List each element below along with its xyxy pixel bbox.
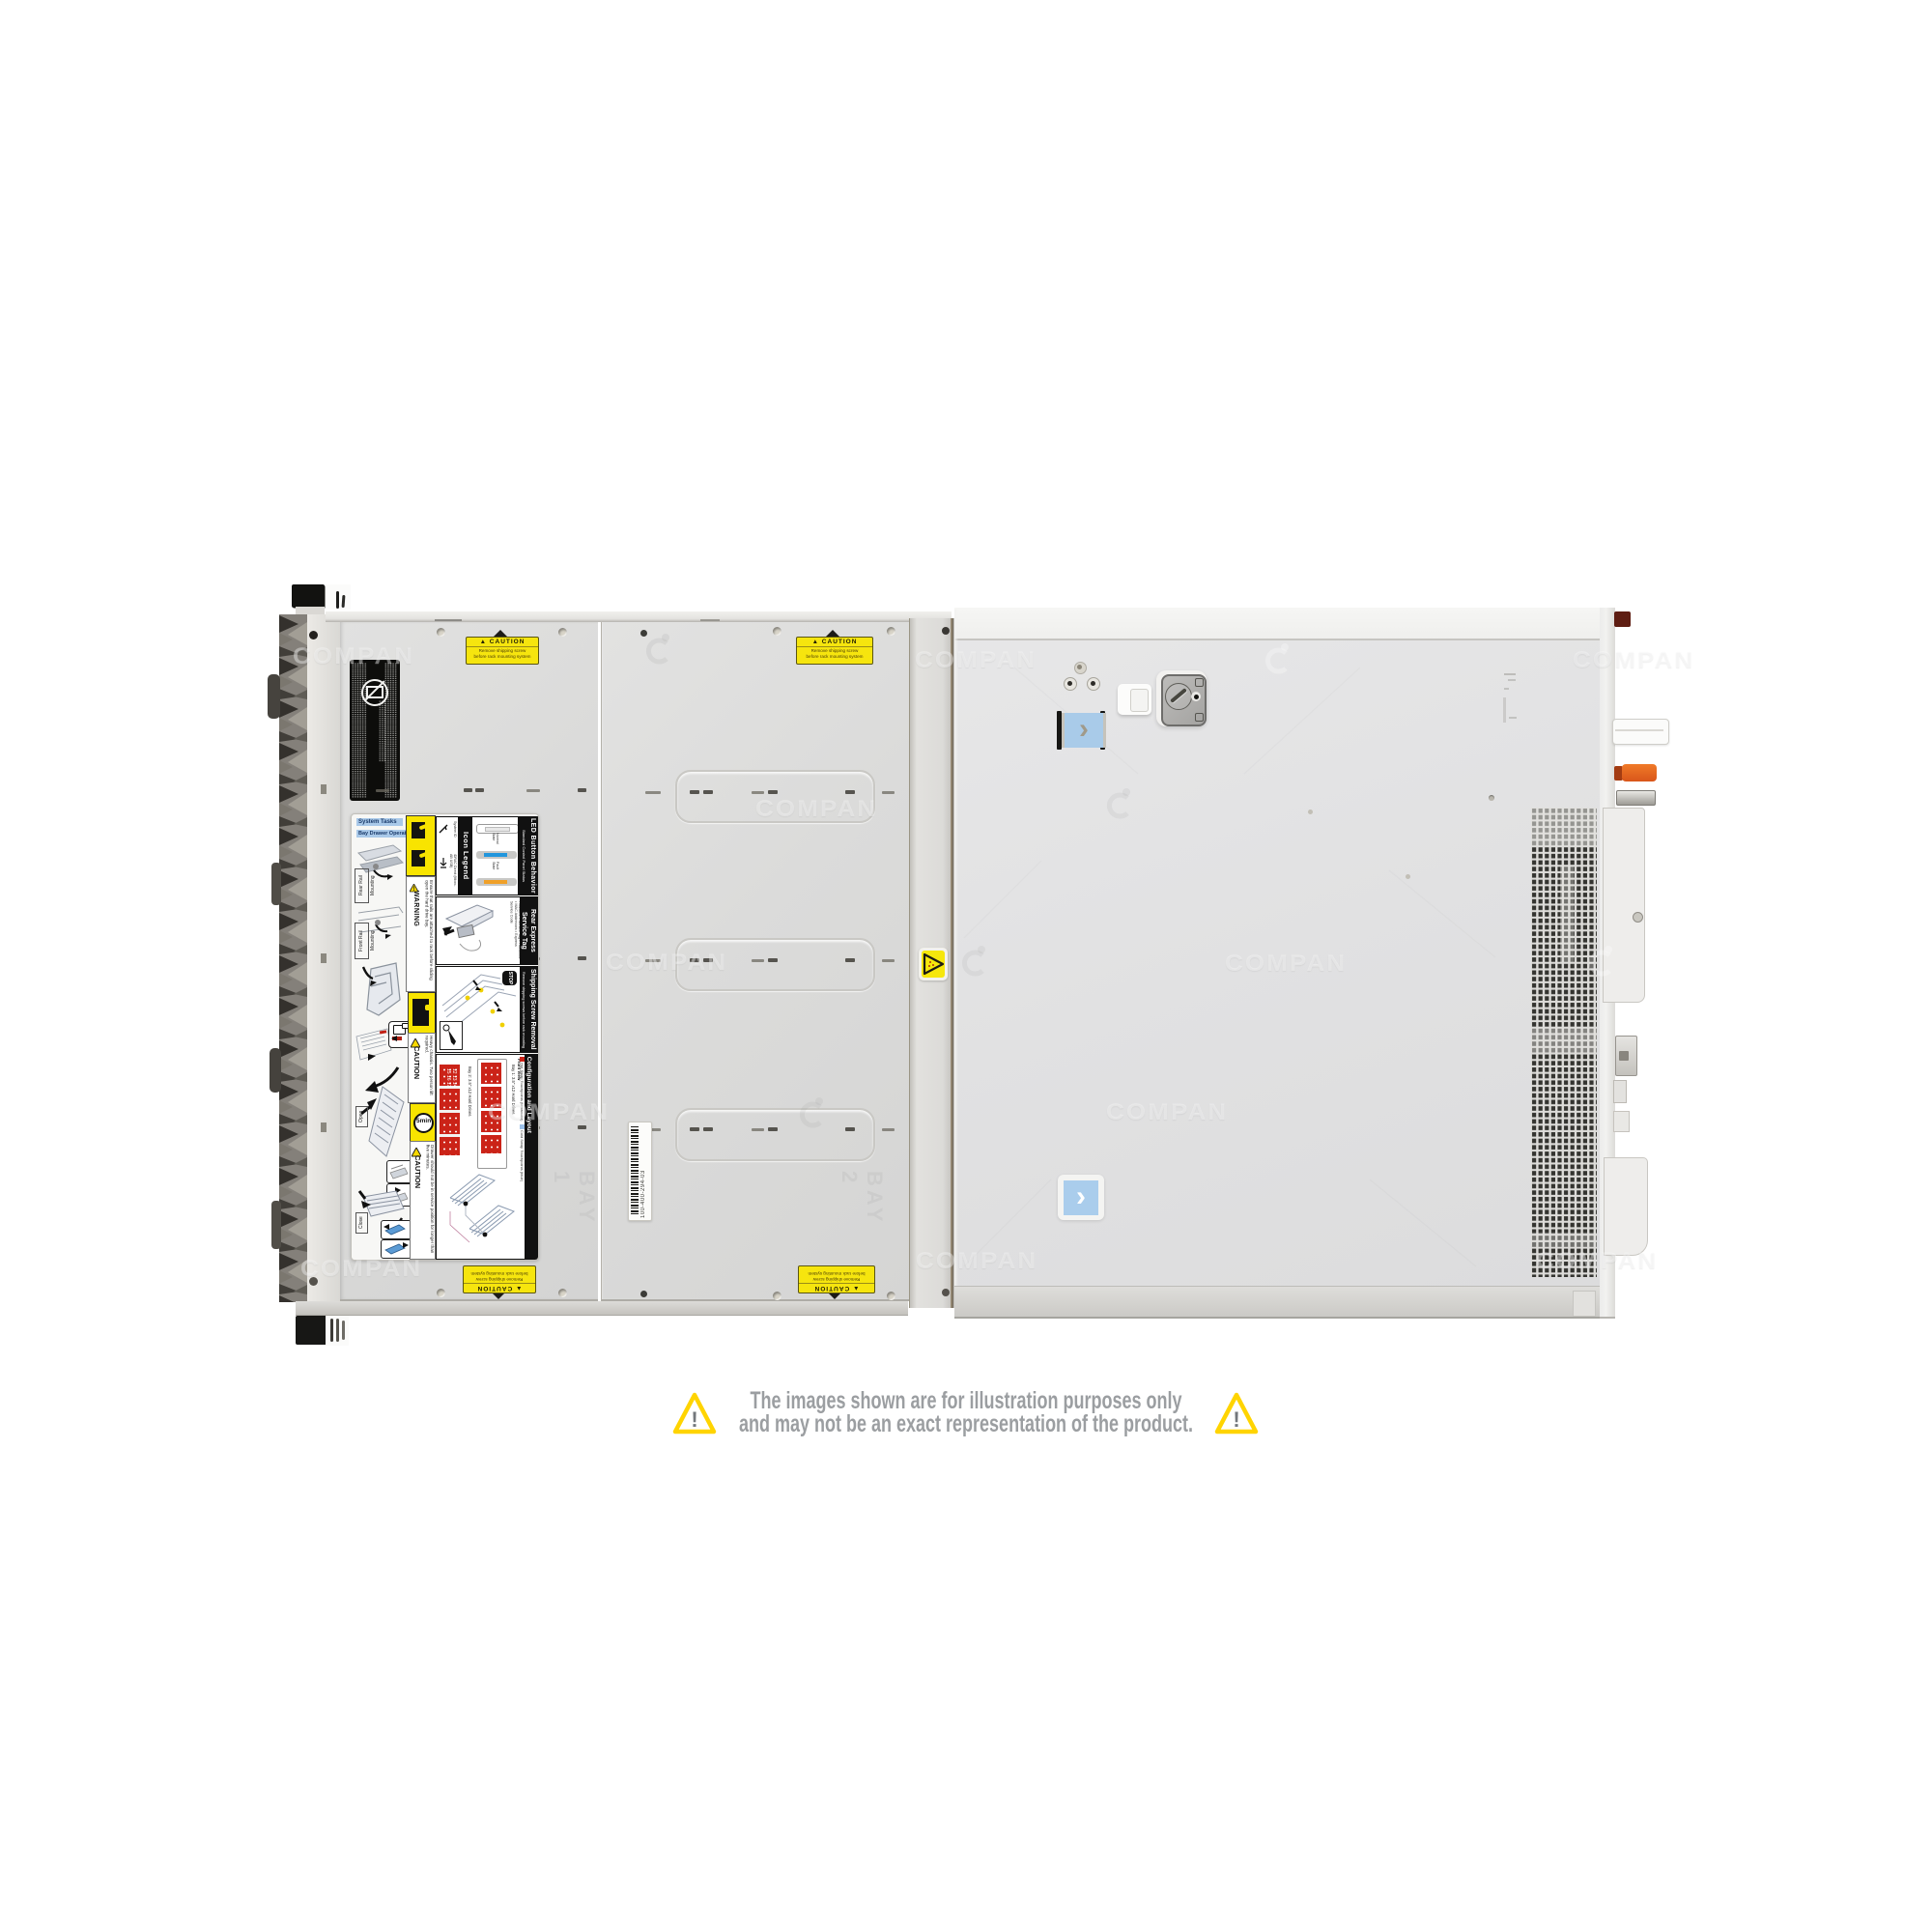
svg-text:!: !: [1233, 1407, 1239, 1432]
svg-text:15 16 17: 15 16 17: [445, 1068, 451, 1088]
